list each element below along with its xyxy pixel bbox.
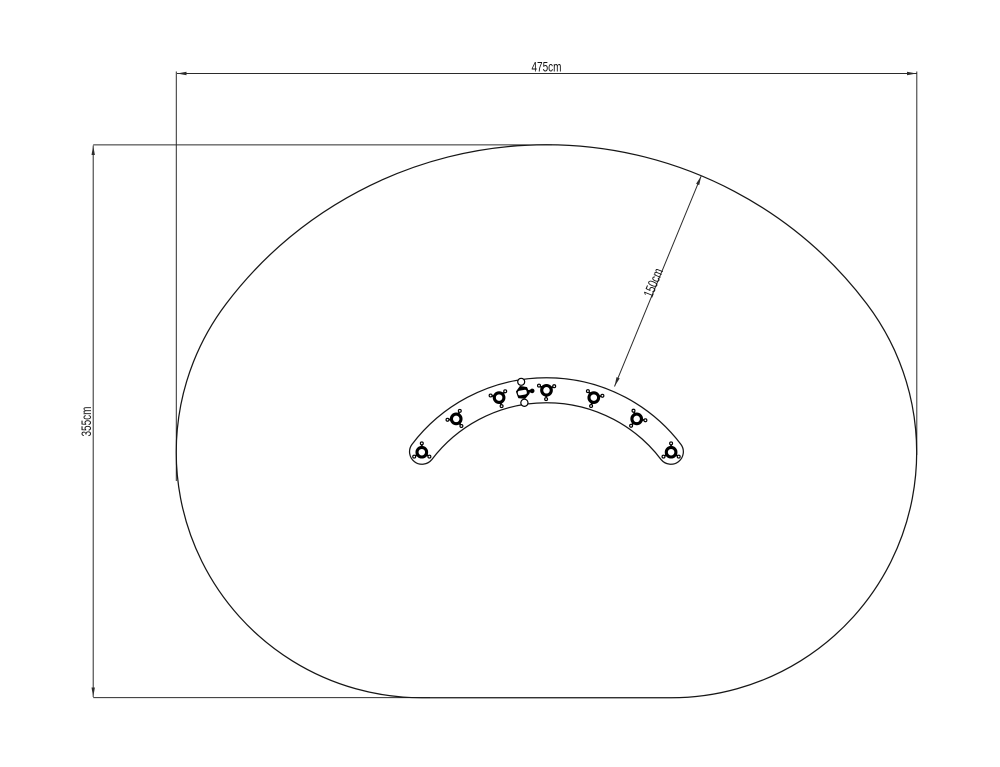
svg-text:475cm: 475cm bbox=[532, 59, 562, 74]
svg-text:355cm: 355cm bbox=[79, 407, 94, 437]
